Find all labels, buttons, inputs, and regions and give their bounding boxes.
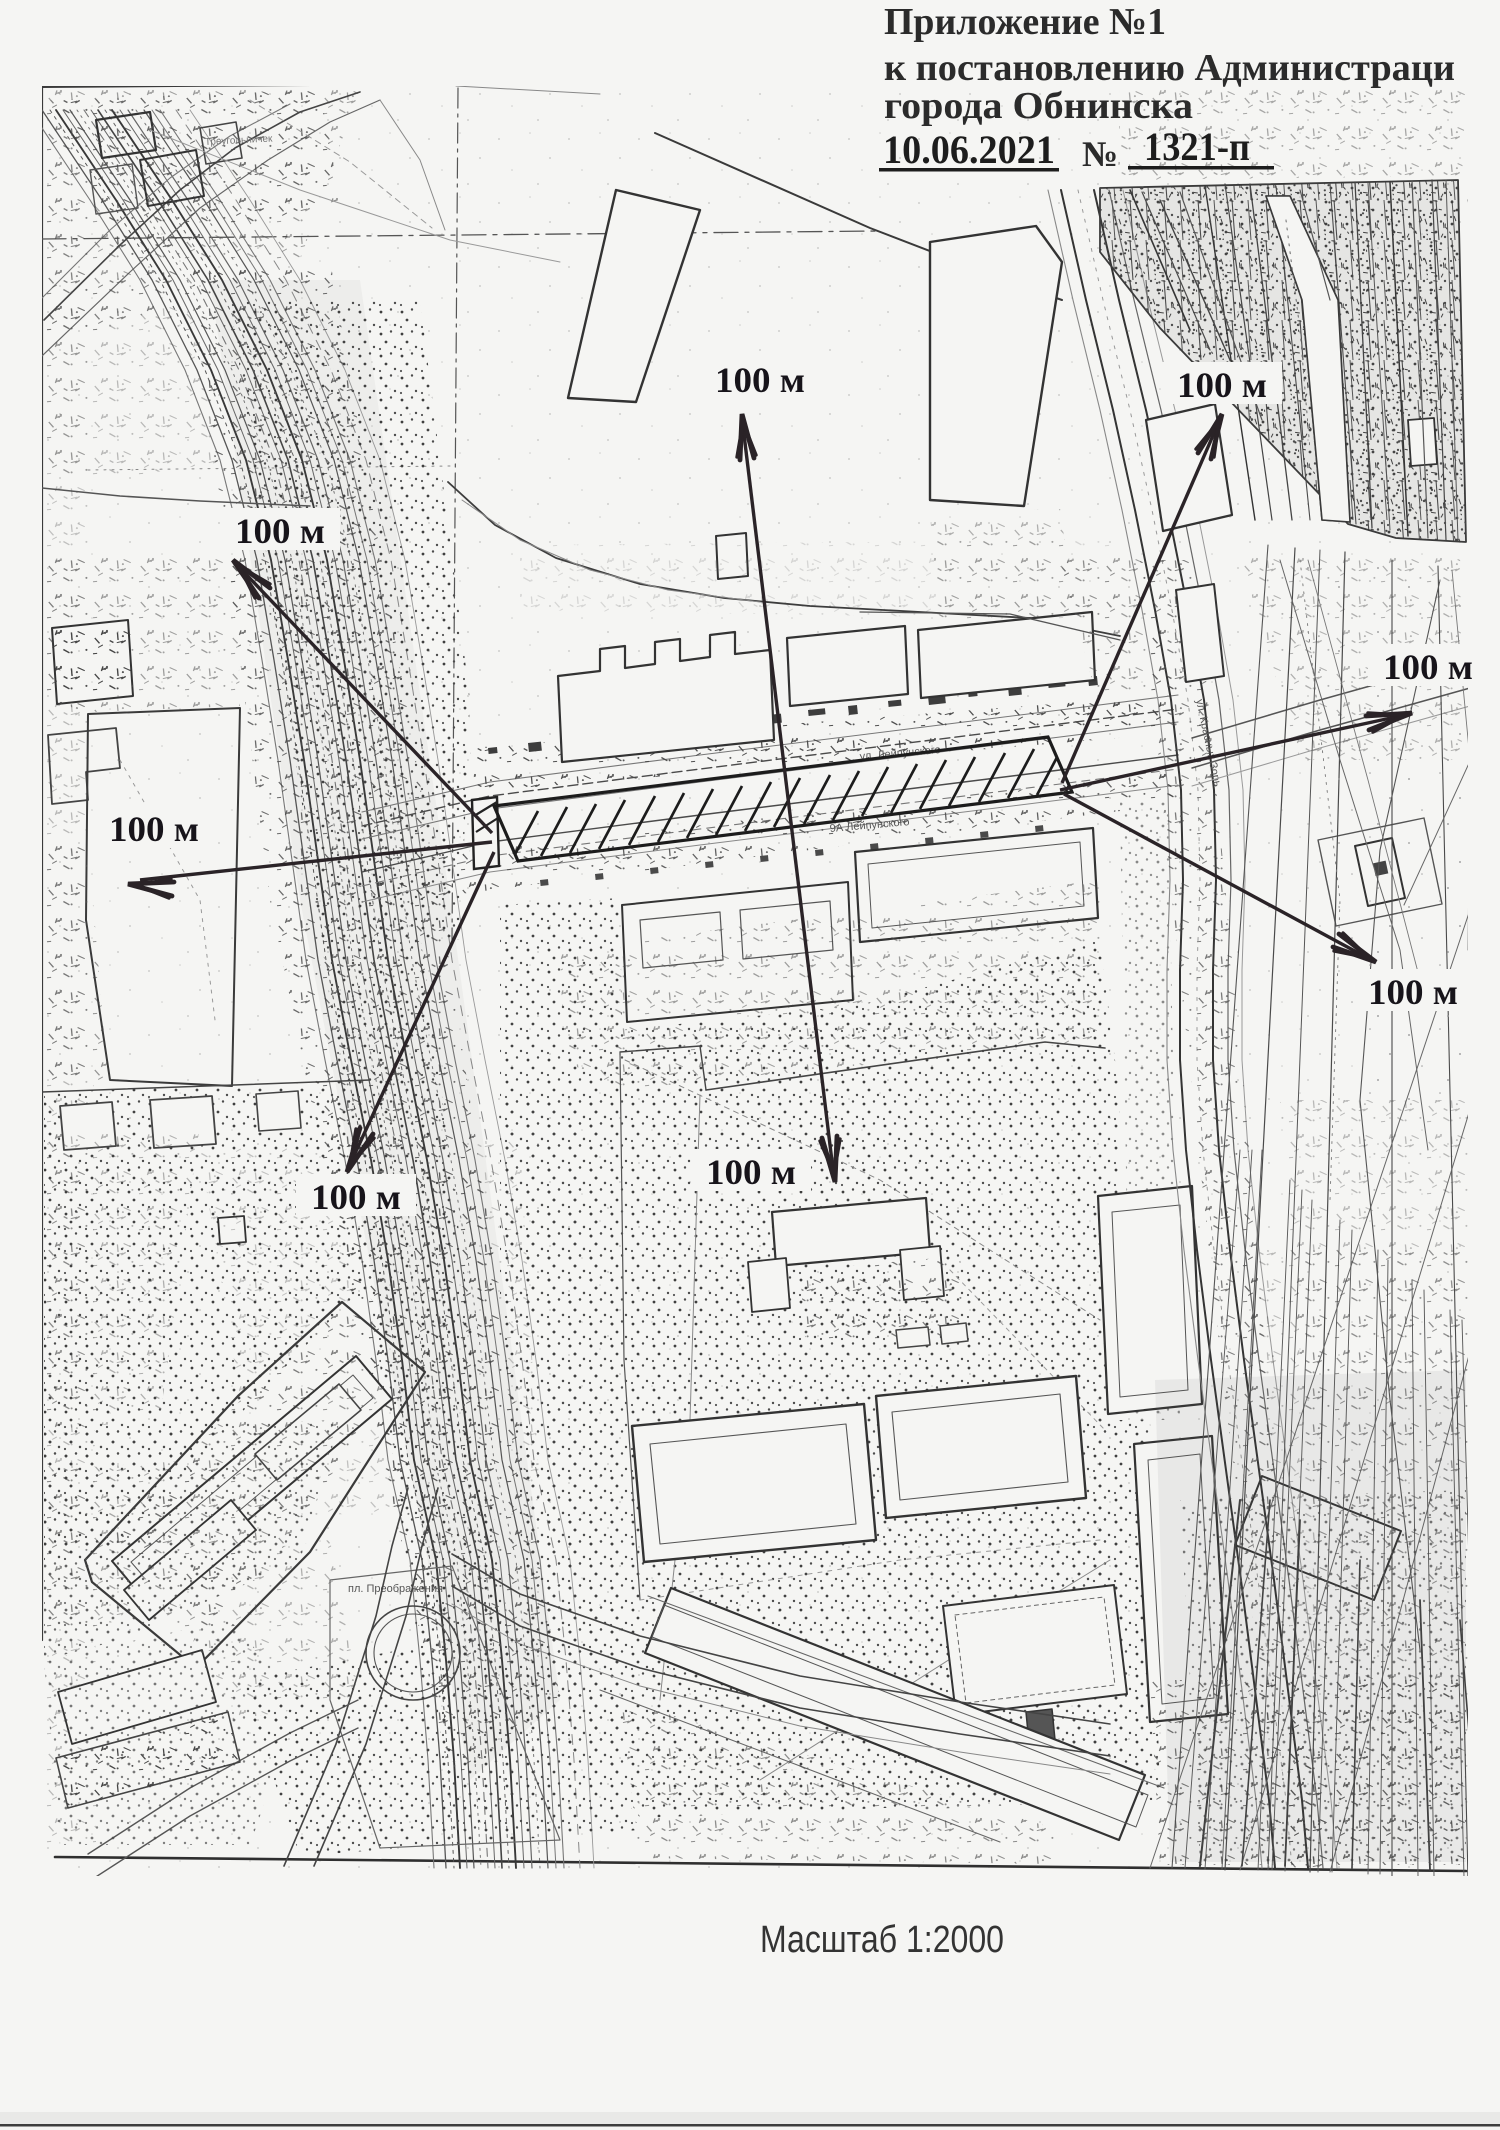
svg-text:пл. Преображения: пл. Преображения (348, 1583, 443, 1595)
svg-text:Масштаб 1:2000: Масштаб 1:2000 (760, 1919, 1004, 1961)
svg-text:100 м: 100 м (1383, 647, 1473, 687)
svg-text:100 м: 100 м (311, 1177, 401, 1217)
svg-text:№: № (1082, 134, 1118, 174)
svg-text:Приложение №1: Приложение №1 (884, 1, 1166, 43)
svg-text:100 м: 100 м (706, 1152, 796, 1192)
svg-text:10.06.2021: 10.06.2021 (883, 127, 1055, 172)
svg-text:100 м: 100 м (715, 360, 805, 400)
svg-text:100 м: 100 м (1177, 365, 1267, 405)
svg-text:1321-п: 1321-п (1144, 124, 1250, 169)
svg-text:города Обнинска: города Обнинска (884, 85, 1193, 127)
svg-text:к постановлению Администраци: к постановлению Администраци (884, 47, 1455, 89)
svg-text:100 м: 100 м (109, 809, 199, 849)
svg-text:100 м: 100 м (1368, 972, 1458, 1012)
svg-text:100 м: 100 м (235, 511, 325, 551)
